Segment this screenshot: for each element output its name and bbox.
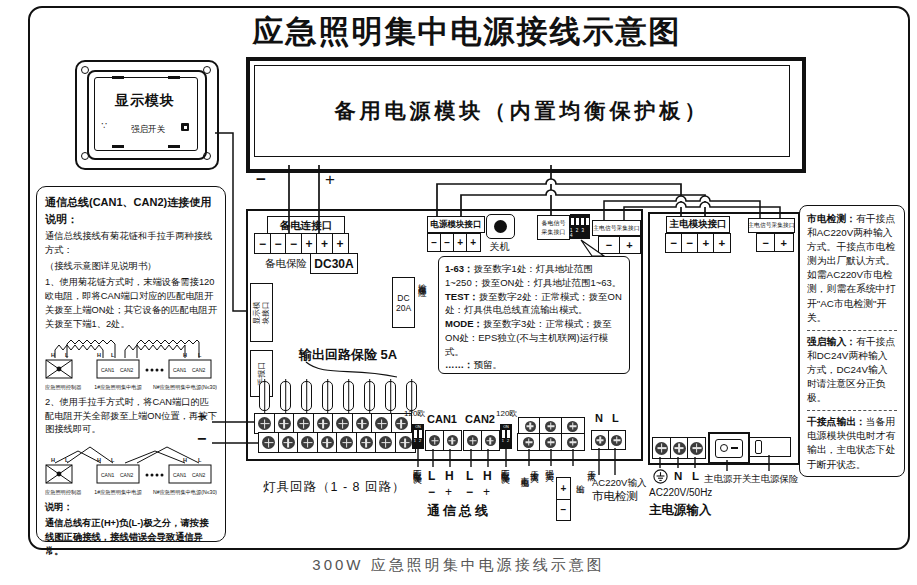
ac-detect-label: 市电检测 — [592, 489, 638, 504]
panel-tab — [112, 145, 124, 148]
dry-contact-input-label: 干接点输入 — [529, 463, 541, 468]
mains-power-switch — [708, 432, 750, 464]
screw-terminal — [463, 430, 482, 451]
terminal: + — [301, 233, 318, 254]
shutdown-button — [486, 214, 515, 239]
mains-fuse-holder — [749, 437, 791, 457]
svg-text:H: H — [183, 457, 187, 463]
comm-bus-label: 通信总线 — [427, 502, 491, 520]
mains-l-label: L — [692, 470, 699, 482]
psu-connector-terminals: − − + + — [427, 233, 481, 252]
terminal: − — [681, 233, 699, 253]
display-module-screen — [94, 77, 198, 151]
terminal: + — [316, 233, 333, 254]
svg-text:H: H — [97, 457, 101, 463]
svg-text:应急照明控制器: 应急照明控制器 — [45, 384, 81, 391]
ohm-label: 120欧 — [404, 408, 425, 419]
mains-signal-port-label: 主电信号采集接口 — [748, 218, 795, 233]
earth-icon — [653, 469, 668, 484]
svg-text:CAN1: CAN1 — [101, 366, 115, 372]
screw-terminal — [336, 432, 357, 453]
svg-text:H: H — [51, 457, 55, 463]
screw-terminal — [293, 413, 314, 434]
shutdown-button-icon — [494, 220, 507, 233]
fuse-icon — [406, 381, 417, 411]
can2-terminals — [463, 430, 500, 451]
instructions-item1: 1、使用菊花链方式时，末端设备需接120欧电阻，即将CAN端口对应的匹配电阻开关… — [45, 276, 217, 332]
mains-input-terminals — [652, 437, 706, 459]
terminal: + — [332, 233, 349, 254]
svg-text:CAN2: CAN2 — [192, 472, 206, 478]
switch-on-mark — [731, 447, 738, 449]
lamp-minus-label: − — [197, 430, 206, 448]
mains-n-label: N — [674, 470, 682, 482]
dip-switch-notes: 1-63：拨至数字1处：灯具地址范围1~250；拨至ON处：灯具地址范围1~63… — [438, 256, 630, 374]
screw-terminal — [670, 437, 689, 459]
backup-fuse-label: 备电保险 — [265, 257, 307, 271]
display-module-label: 显示模块 — [94, 92, 196, 110]
force-start-switch-label: 强启开关 — [131, 124, 165, 136]
screw-terminal — [258, 432, 279, 453]
mains-signal-terminals: − + — [756, 233, 794, 252]
screw-terminal — [591, 430, 609, 450]
instructions-item2: 2、使用手拉手方式时，将CAN端口的匹配电阻开关全部拨至上端ON位置，再按下图接… — [45, 396, 217, 438]
svg-text:L: L — [111, 352, 115, 358]
screw-terminal — [371, 413, 392, 434]
lamp-circuits-label: 灯具回路（1 - 8 回路） — [263, 479, 406, 496]
terminal: − — [270, 233, 287, 254]
terminal: − — [254, 233, 271, 254]
daisy-chain-diagram: HL HL HL CAN1CAN2 CAN1CAN2 应急照明控制器 1#应急照… — [45, 334, 217, 394]
screw-terminal — [274, 413, 295, 434]
ac-detect-sub-label: 市电检测 — [518, 470, 529, 474]
fuse-icon — [259, 381, 270, 411]
backup-power-module-label: 备用电源模块（内置均衡保护板） — [254, 65, 790, 157]
shutdown-label: 关机 — [486, 240, 513, 254]
note-line: TEST：拨至数字2处：正常模式；拨至ON处：灯具供电总线直流输出模式。 — [445, 290, 623, 318]
matching-resistor-label: 匹配电阻开关 — [412, 463, 424, 469]
backup-signal-port-label: 备电信号采集接口 — [537, 215, 570, 240]
matching-resistor-label: 匹配电阻开关 — [500, 463, 512, 469]
terminal: − — [598, 236, 620, 254]
fuse-icon — [364, 381, 375, 411]
mains-connector-terminals: − − + + — [665, 233, 731, 253]
instructions-line: 通信总线接线有菊花链和手拉手两种接线方式： — [45, 230, 217, 258]
screw-terminal — [561, 433, 585, 451]
n-label: N — [595, 412, 603, 424]
main-signal-terminals: − + — [598, 236, 641, 254]
note-section: 市电检测：有干接点和AC220V两种输入方式。干接点市电检测为出厂默认方式。如需… — [807, 212, 897, 325]
can-pin-sign: − — [428, 485, 435, 499]
svg-text:应急照明控制器: 应急照明控制器 — [45, 489, 81, 496]
mains-input-label: 主电源输入 — [649, 502, 712, 519]
screw-terminal — [608, 430, 626, 450]
instructions-line: （接线示意图详见说明书） — [45, 260, 217, 274]
screw-terminal — [332, 413, 353, 434]
screw-terminal — [297, 432, 318, 453]
terminal: − — [665, 233, 683, 253]
can1-terminals — [425, 430, 462, 451]
panel-tab — [168, 76, 180, 79]
fuse-icon — [385, 381, 396, 411]
svg-text:H: H — [183, 352, 187, 358]
total-output-fuse-label: 输出总保险 — [417, 277, 429, 282]
svg-text:CAN1: CAN1 — [173, 472, 187, 478]
dip-switch-4: 1 2 3 4 — [570, 214, 590, 239]
note-body: 通信总线有正(H+)负(L-)极之分，请按接线图正确接线，接线错误会导致通信异常… — [45, 517, 217, 559]
screw-terminal — [317, 432, 338, 453]
svg-text:H: H — [97, 352, 101, 358]
svg-text:L: L — [198, 352, 202, 358]
screw-terminal — [313, 413, 334, 434]
total-output-fuse-value: DC20A — [392, 277, 415, 328]
caption: 300W 应急照明集中电源接线示意图 — [0, 556, 917, 575]
can2-label: CAN2 — [465, 413, 495, 425]
screw-terminal — [652, 437, 671, 459]
panel-tab — [112, 76, 124, 79]
can-pin-label: H — [445, 469, 454, 483]
screw-terminal — [443, 430, 462, 451]
page-title: 应急照明集中电源接线示意图 — [28, 11, 906, 53]
note-section: 强启输入：有干接点和DC24V两种输入方式，DC24V输入时请注意区分正负极。 — [807, 330, 897, 405]
lamp-terminals-row1 — [254, 413, 412, 434]
instructions-heading: 通信总线(CAN1、CAN2)连接使用说明： — [45, 194, 217, 227]
comm-bus-instructions-panel: 通信总线(CAN1、CAN2)连接使用说明： 通信总线接线有菊花链和手拉手两种接… — [36, 186, 226, 542]
screw-terminal — [356, 432, 377, 453]
mains-freq-label: AC220V/50Hz — [649, 487, 712, 498]
screw-terminal — [481, 430, 500, 451]
note-line: ……：预留。 — [445, 358, 623, 372]
mains-switch-label: 主电源开关 — [704, 473, 752, 486]
svg-text:N#应急照明集中电源(N≤30): N#应急照明集中电源(N≤30) — [153, 384, 217, 390]
lamp-plus-label: + — [197, 408, 206, 426]
fuse-icon — [343, 381, 354, 411]
svg-text:CAN1: CAN1 — [173, 366, 187, 372]
fuse-icon — [280, 381, 291, 411]
hand-in-hand-diagram: HL HL HL CAN1CAN2 CAN1CAN2 应急照明控制器 1#应急照… — [45, 439, 217, 499]
note-section: 干接点输出：当备用电源模块供电时才有输出，主电状态下处于断开状态。 — [807, 410, 897, 471]
svg-text:CAN2: CAN2 — [192, 366, 206, 372]
display-port: 显示模块接口 — [250, 283, 273, 342]
switch-off-mark — [720, 444, 728, 452]
lamp-terminals-row2 — [258, 432, 416, 453]
panel-tab — [168, 145, 180, 148]
ohm-label: 120欧 — [496, 408, 517, 419]
screw-terminal — [687, 437, 706, 459]
can-pin-sign: − — [466, 485, 473, 499]
psu-connector-label: 电源模块接口 — [427, 216, 485, 233]
fuse-pill-icon — [755, 440, 762, 454]
main-signal-port-label: 主电信号采集接口 — [592, 220, 641, 236]
screw-terminal — [517, 433, 541, 451]
force-start-input-label: 强启输入 — [544, 463, 556, 467]
dip-switch-120ohm-2: ON1 2 — [500, 424, 512, 449]
backup-connector-terminals: − − − + + + — [254, 233, 349, 254]
indicator-dots: ∵ — [101, 120, 107, 131]
can1-label: CAN1 — [427, 413, 457, 425]
screw-terminal — [278, 432, 299, 453]
dip-switch-120ohm-1: ON1 2 — [412, 424, 424, 449]
fuse-icon — [322, 381, 333, 411]
screw-terminal — [539, 433, 563, 451]
can-pin-sign: + — [445, 485, 452, 499]
svg-text:CAN1: CAN1 — [101, 472, 115, 478]
terminal: − — [285, 233, 302, 254]
l-label: L — [612, 412, 619, 424]
force-start-polarity: +− — [556, 477, 571, 521]
right-notes-panel: 市电检测：有干接点和AC220V两种输入方式。干接点市电检测为出厂默认方式。如需… — [799, 205, 905, 477]
terminal: + — [713, 233, 731, 253]
note-line: MODE：拨至数字3处：正常模式；拨至ON处：EPS独立(不与主机联网)运行模式… — [445, 317, 623, 358]
mains-connector-label: 主电模块接口 — [666, 216, 730, 233]
svg-text:N#应急照明集中电源(N≤30): N#应急照明集中电源(N≤30) — [153, 489, 217, 495]
svg-text:L: L — [65, 352, 69, 358]
screw-terminal — [352, 413, 373, 434]
svg-text:CAN2: CAN2 — [120, 366, 134, 372]
backup-plus-label: + — [325, 170, 335, 190]
terminal: + — [774, 233, 794, 252]
terminal: + — [466, 233, 481, 252]
terminal: + — [619, 236, 641, 254]
screw-terminal — [254, 413, 275, 434]
backup-minus-label: − — [256, 170, 266, 190]
svg-text:L: L — [198, 457, 202, 463]
circuit-fuse-label: 输出回路保险 5A — [299, 346, 397, 364]
dry-contact-output-sub-label: 输出 — [575, 478, 587, 480]
ac-detect-terminals — [591, 430, 626, 450]
note-heading: 说明： — [45, 502, 73, 512]
can-pin-label: L — [428, 469, 435, 483]
fuse-icon — [301, 381, 312, 411]
dry-contact-output-label: 干接点 — [586, 463, 598, 466]
terminal: + — [697, 233, 715, 253]
can-pin-label: L — [466, 469, 473, 483]
screw-terminal — [425, 430, 444, 451]
circuit-fuses — [259, 381, 417, 411]
svg-text:H: H — [51, 352, 55, 358]
can-pin-sign: + — [483, 485, 490, 499]
wiring-diagram-page: 应急照明集中电源接线示意图 显示模块 ∵ 强启开关 备用电源模块（内置均衡保护板… — [0, 0, 917, 585]
mains-fuse-label: 主电源保险 — [751, 473, 799, 486]
backup-fuse-value: DC30A — [310, 253, 358, 274]
svg-text:L: L — [111, 457, 115, 463]
can-pin-label: H — [483, 469, 492, 483]
screw-terminal — [375, 432, 396, 453]
terminal: − — [756, 233, 776, 252]
note-line: 1-63：拨至数字1处：灯具地址范围1~250；拨至ON处：灯具地址范围1~63… — [445, 262, 623, 290]
svg-text:CAN2: CAN2 — [120, 472, 134, 478]
dry-contact-terminal-block — [518, 417, 584, 449]
svg-text:1#应急照明集中电源: 1#应急照明集中电源 — [94, 384, 142, 390]
force-start-switch-icon — [181, 123, 189, 131]
svg-text:1#应急照明集中电源: 1#应急照明集中电源 — [94, 489, 142, 495]
